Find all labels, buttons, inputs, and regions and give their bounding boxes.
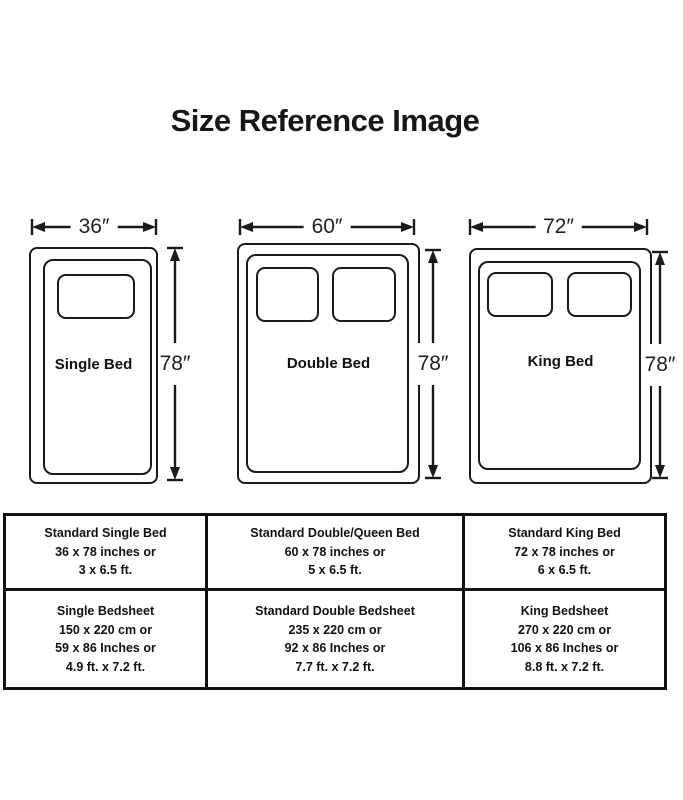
- cell-line: 92 x 86 Inches or: [285, 639, 386, 658]
- cell-line: 59 x 86 Inches or: [55, 639, 156, 658]
- double-bed-height-arrow: 78″: [420, 248, 446, 480]
- king-bed-width-arrow: 72″: [468, 214, 649, 240]
- king-bed-width-label: 72″: [535, 214, 582, 240]
- table-cell-king-bedsheet: King Bedsheet 270 x 220 cm or 106 x 86 I…: [465, 591, 664, 687]
- single-bed-width-label: 36″: [71, 214, 118, 240]
- cell-line: 36 x 78 inches or: [55, 543, 156, 562]
- cell-line: 106 x 86 Inches or: [511, 639, 619, 658]
- king-bed-height-label: 78″: [644, 344, 677, 386]
- king-bed-label: King Bed: [469, 353, 652, 370]
- cell-line: 235 x 220 cm or: [288, 621, 381, 640]
- single-bed-height-label: 78″: [159, 343, 192, 385]
- double-bed-pillow-left: [256, 267, 319, 322]
- double-bed-width-arrow: 60″: [238, 214, 416, 240]
- cell-line: 60 x 78 inches or: [285, 543, 386, 562]
- single-bed-pillow: [57, 274, 135, 319]
- cell-line: King Bedsheet: [521, 602, 609, 621]
- cell-line: Standard Double/Queen Bed: [250, 524, 419, 543]
- king-bed-pillow-right: [567, 272, 632, 317]
- cell-line: 270 x 220 cm or: [518, 621, 611, 640]
- single-bed-width-arrow: 36″: [30, 214, 158, 240]
- cell-line: 72 x 78 inches or: [514, 543, 615, 562]
- king-bed-pillow-left: [487, 272, 553, 317]
- page-title: Size Reference Image: [0, 103, 650, 139]
- double-bed-width-label: 60″: [304, 214, 351, 240]
- cell-line: 6 x 6.5 ft.: [538, 561, 592, 580]
- table-cell-standard-single-bed: Standard Single Bed 36 x 78 inches or 3 …: [6, 516, 208, 591]
- size-reference-image: Size Reference Image 36″ Single Bed 78″: [0, 0, 683, 800]
- table-cell-standard-double-bedsheet: Standard Double Bedsheet 235 x 220 cm or…: [208, 591, 465, 687]
- double-bed-height-label: 78″: [417, 343, 450, 385]
- cell-line: Standard Double Bedsheet: [255, 602, 415, 621]
- cell-line: Standard Single Bed: [44, 524, 166, 543]
- size-table: Standard Single Bed 36 x 78 inches or 3 …: [3, 513, 667, 690]
- single-bed-height-arrow: 78″: [162, 246, 188, 482]
- cell-line: 7.7 ft. x 7.2 ft.: [295, 658, 374, 677]
- table-cell-standard-double-queen-bed: Standard Double/Queen Bed 60 x 78 inches…: [208, 516, 465, 591]
- cell-line: Single Bedsheet: [57, 602, 154, 621]
- table-cell-standard-king-bed: Standard King Bed 72 x 78 inches or 6 x …: [465, 516, 664, 591]
- double-bed-pillow-right: [332, 267, 396, 322]
- table-cell-single-bedsheet: Single Bedsheet 150 x 220 cm or 59 x 86 …: [6, 591, 208, 687]
- cell-line: 5 x 6.5 ft.: [308, 561, 362, 580]
- cell-line: 3 x 6.5 ft.: [79, 561, 133, 580]
- cell-line: Standard King Bed: [508, 524, 621, 543]
- cell-line: 4.9 ft. x 7.2 ft.: [66, 658, 145, 677]
- cell-line: 150 x 220 cm or: [59, 621, 152, 640]
- single-bed-label: Single Bed: [29, 356, 158, 373]
- double-bed-label: Double Bed: [237, 355, 420, 372]
- king-bed-height-arrow: 78″: [647, 250, 673, 480]
- cell-line: 8.8 ft. x 7.2 ft.: [525, 658, 604, 677]
